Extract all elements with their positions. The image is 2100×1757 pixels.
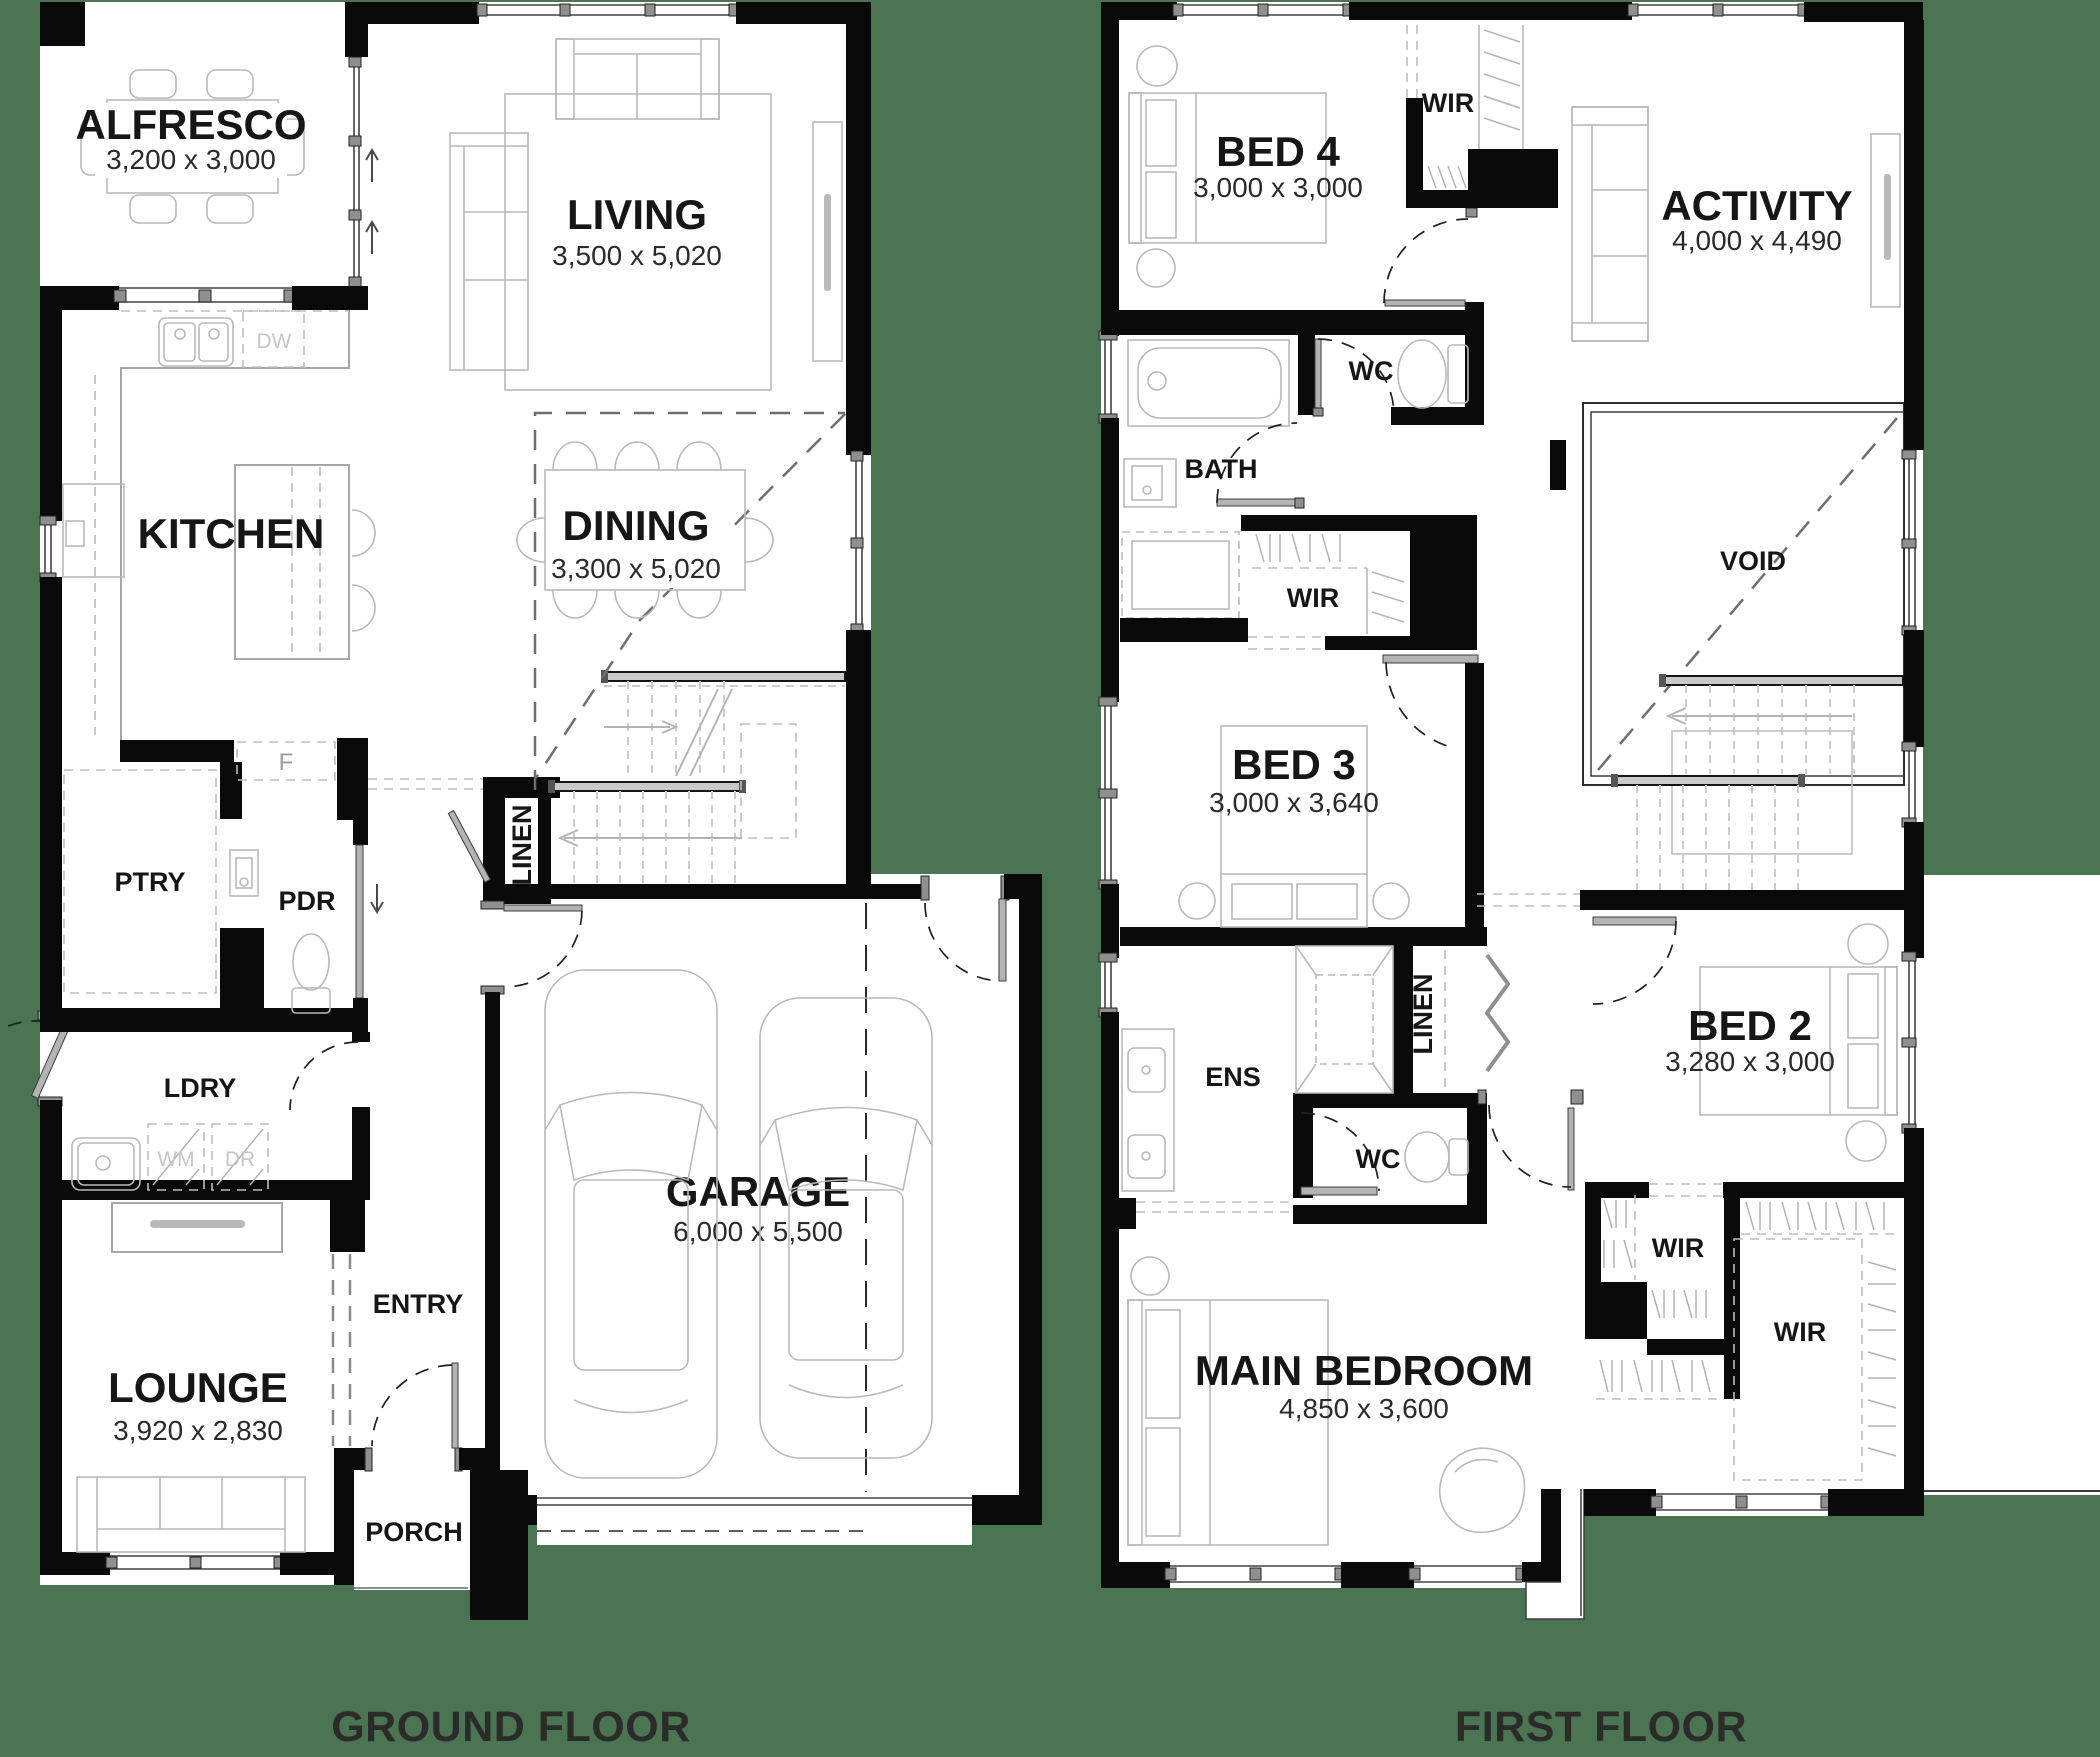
svg-text:WM: WM [157,1148,194,1171]
svg-text:4,850 x 3,600: 4,850 x 3,600 [1279,1393,1449,1424]
svg-text:FIRST FLOOR: FIRST FLOOR [1455,1703,1747,1751]
svg-text:4,000 x 4,490: 4,000 x 4,490 [1672,225,1842,256]
svg-text:BATH: BATH [1185,454,1258,484]
svg-text:LOUNGE: LOUNGE [108,1364,288,1411]
svg-text:PORCH: PORCH [365,1517,463,1547]
svg-text:ENS: ENS [1205,1062,1261,1092]
svg-text:LINEN: LINEN [507,805,537,886]
svg-text:6,000 x 5,500: 6,000 x 5,500 [673,1216,843,1247]
svg-text:LINEN: LINEN [1408,974,1438,1055]
svg-text:LDRY: LDRY [164,1073,237,1103]
svg-text:GARAGE: GARAGE [666,1168,850,1215]
svg-text:PDR: PDR [278,886,335,916]
svg-text:VOID: VOID [1720,546,1786,576]
svg-text:WIR: WIR [1422,88,1474,118]
svg-text:3,200 x 3,000: 3,200 x 3,000 [106,144,276,175]
svg-text:ACTIVITY: ACTIVITY [1661,182,1852,229]
svg-text:PTRY: PTRY [114,867,185,897]
svg-text:WIR: WIR [1774,1317,1826,1347]
svg-text:3,300 x 5,020: 3,300 x 5,020 [551,553,721,584]
svg-text:F: F [279,749,294,776]
svg-text:BED 3: BED 3 [1232,741,1356,788]
svg-text:GROUND FLOOR: GROUND FLOOR [331,1703,691,1751]
svg-text:WIR: WIR [1652,1233,1704,1263]
svg-text:3,920 x 2,830: 3,920 x 2,830 [113,1415,283,1446]
svg-text:3,500 x 5,020: 3,500 x 5,020 [552,240,722,271]
svg-text:KITCHEN: KITCHEN [138,510,325,557]
svg-text:DW: DW [257,330,292,353]
svg-text:WIR: WIR [1287,583,1339,613]
svg-text:ENTRY: ENTRY [373,1289,464,1319]
svg-text:3,000 x 3,000: 3,000 x 3,000 [1193,172,1363,203]
svg-text:DINING: DINING [563,502,710,549]
svg-text:BED 2: BED 2 [1688,1002,1812,1049]
svg-text:LIVING: LIVING [567,191,707,238]
svg-text:WC: WC [1356,1144,1401,1174]
svg-text:3,280 x 3,000: 3,280 x 3,000 [1665,1046,1835,1077]
svg-text:DR: DR [225,1148,255,1171]
svg-text:ALFRESCO: ALFRESCO [76,101,307,148]
svg-text:3,000 x 3,640: 3,000 x 3,640 [1209,787,1379,818]
svg-text:WC: WC [1349,356,1394,386]
svg-text:BED 4: BED 4 [1216,128,1340,175]
svg-text:MAIN BEDROOM: MAIN BEDROOM [1195,1347,1533,1394]
